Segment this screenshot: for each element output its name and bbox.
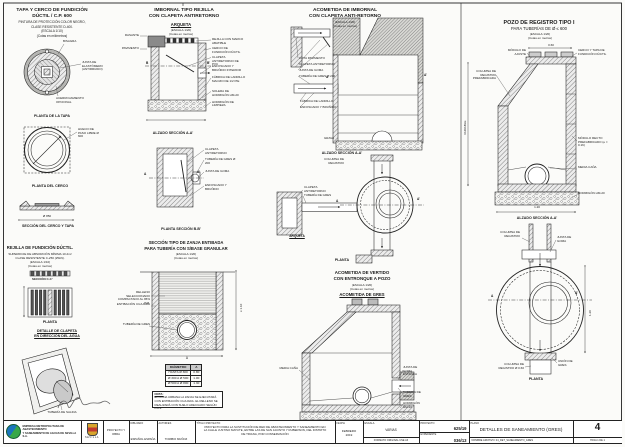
p3-plan-mark-a: A bbox=[336, 200, 338, 204]
panel1-title-line2: DÚCTIL / C.P. 600 bbox=[32, 14, 72, 19]
caption-detalle-clapeta-1: DETALLE DE CLAPETA bbox=[37, 329, 77, 333]
panel1-title-line1: TAPA Y CERCO DE FUNDICIÓN bbox=[16, 8, 87, 13]
dim-pozo-planta: 1.20 bbox=[589, 310, 593, 316]
caption-planta-tapa: PLANTA DE LA TAPA bbox=[34, 114, 70, 118]
dim-pozo-060: 0.60 bbox=[548, 44, 554, 48]
label-modulo-recto: MÓDULO RECTO PREFABRICADO (e = 0.16) bbox=[578, 137, 614, 148]
caption-rejilla-planta: PLANTA bbox=[43, 320, 57, 324]
panel2-title-line1: IMBORNAL TIPO REJILLA bbox=[154, 8, 214, 13]
p4-mark-a2: A' bbox=[575, 292, 578, 296]
sheet-number: 4 bbox=[574, 422, 622, 433]
project-phase-cell: PROYECTO Y OBRA bbox=[104, 421, 130, 443]
label-union-gres: UNIÓN DE GRES bbox=[558, 360, 580, 367]
label-modulo-ajuste: MÓDULO DE AJUSTE bbox=[500, 49, 526, 56]
rejilla-units-note: (Cotas en metros) bbox=[28, 265, 52, 269]
label-rejilla-marco: REJILLA CON MARCO ABATIBLE bbox=[212, 38, 244, 45]
dim-pozo-variable: VARIABLE bbox=[464, 121, 468, 135]
caption-pozo-alzado: ALZADO SECCIÓN A-A' bbox=[517, 216, 557, 220]
label-hormigon-limpieza: HORMIGÓN DE LIMPIEZA bbox=[212, 101, 244, 108]
label-det-ladrillo: FÁBRICA DE LADRILLO bbox=[300, 100, 333, 104]
table-row: Ø 500 A Ø 8001.30 bbox=[166, 381, 202, 387]
drawing-rejilla-planta bbox=[24, 288, 72, 317]
sheet-number-cell: 4 HOJA 1 DE 1 bbox=[574, 421, 622, 443]
panel2-units-note: (Cotas en metros) bbox=[169, 33, 193, 37]
company-name-line2: Y SANEAMIENTO DE AGUAS DE SEVILLA S.A. bbox=[23, 432, 79, 439]
label-det-junta: JUNTA DE GOMA bbox=[299, 69, 323, 73]
label-cerco-tapa: CERCO Y TAPA DE FUNDICIÓN DÚCTIL bbox=[578, 49, 614, 56]
label-rasante: RASANTE bbox=[114, 34, 139, 38]
label-hueco-paso: HUECO DE PASO LIBRE Ø 600 bbox=[78, 128, 102, 139]
label-arq-tuberia: TUBERÍA DE GRES bbox=[304, 194, 334, 198]
caption-detalle-clapeta-2: EN DIRECCIÓN DEL AGUA bbox=[34, 334, 80, 338]
file-number: 036/13 bbox=[454, 438, 467, 443]
dim-cerco-seccion: Ø 850 bbox=[43, 215, 51, 219]
zanja-title-line2: PARA TUBERÍA CON S/BASE GRANULAR bbox=[144, 247, 227, 252]
drawing-rejilla-seccion bbox=[30, 271, 70, 276]
p3-mark-a2: A' bbox=[424, 74, 427, 78]
panel-rejilla-title: REJILLA DE FUNDICIÓN DÚCTIL. bbox=[7, 246, 73, 251]
project-phase: PROYECTO Y OBRA bbox=[104, 428, 129, 436]
label-pavimento: PAVIMENTO bbox=[114, 47, 139, 51]
label-hormigon-hm20: HORMIGÓN HM-20 bbox=[403, 402, 423, 409]
section-mark-b2: B' bbox=[207, 62, 210, 66]
label-hormigon-pozo: HORMIGÓN HM-20 bbox=[578, 192, 614, 196]
authors-label: AUTOR/ES bbox=[159, 422, 172, 425]
drafted-by-cell: DIBUJADO ESPAÑOL ESPAÑA bbox=[130, 421, 158, 443]
label-tuberia-gres: TUBERÍA DE GRES bbox=[112, 323, 150, 327]
caption-arqueta-planta: ARQUETA bbox=[289, 235, 305, 239]
caption-arqueta: ARQUETA bbox=[171, 23, 191, 28]
sheet-count: HOJA 1 DE 1 bbox=[574, 437, 622, 442]
plan-title-cell: PLANO DETALLES DE SANEAMIENTO (GRES) NOM… bbox=[470, 421, 574, 443]
p4-mark-a: A bbox=[491, 295, 493, 299]
caption-pozo-planta: PLANTA bbox=[529, 377, 543, 381]
drafted-by-label: DIBUJADO bbox=[131, 422, 144, 425]
file-number-label: EXPEDIENTE bbox=[421, 433, 437, 436]
p3-plan-mark-a2: A' bbox=[417, 198, 420, 202]
emasesa-logo bbox=[6, 424, 21, 439]
label-det-enfoscado: ENFOSCADO Y BRUÑIDO bbox=[300, 106, 336, 110]
label-junta-elastomero: JUNTA DE ELASTÓMERO (ANTIRRUIDO) bbox=[82, 61, 116, 72]
project-number: 625/19 bbox=[454, 426, 467, 431]
drawing-pozo1-tuberia bbox=[522, 224, 556, 262]
caption-seccion-cerco-tapa: SECCIÓN DEL CERCO Y TAPA bbox=[22, 224, 74, 228]
project-title-line3: DE TRIANA, POR CONSERVACIÓN bbox=[198, 433, 333, 437]
drawing-cerco-planta bbox=[24, 127, 77, 173]
authors-value: TORIBIO MUÑOZ bbox=[158, 437, 195, 441]
caption-imbornal-planta: PLANTA SECCIÓN B-B' bbox=[161, 227, 201, 231]
caption-planta-cerco: PLANTA DEL CERCO bbox=[32, 184, 68, 188]
drawing-vertido-seccion bbox=[299, 299, 416, 420]
drawing-imbornal-planta bbox=[149, 148, 204, 207]
label-junta-goma: JUNTA DE GOMA ESTANCA bbox=[403, 366, 423, 377]
heading-acometida-gres: ACOMETIDA DE GRES bbox=[339, 293, 384, 298]
plan-label: PLANO bbox=[471, 422, 479, 425]
project-title-cell: TÍTULO PROYECTO: PROYECTO PARA LA SUSTIT… bbox=[196, 421, 336, 443]
label-tuberia-salida: TUBERÍA DE SALIDA bbox=[47, 411, 76, 415]
label-fabrica-ladrillo: FÁBRICA DE LADRILLO MACIZO DE 1/2 PIE bbox=[212, 76, 246, 83]
zanja-units-note: (Cotas en metros) bbox=[174, 257, 198, 261]
panel2-title-line2: CON CLAPETA ANTIRETORNO bbox=[149, 14, 219, 19]
date-label: FECHA bbox=[337, 422, 345, 425]
drawing-acometida-imbornal bbox=[291, 18, 423, 150]
dim-zanja-ancho: A bbox=[186, 357, 188, 361]
label-media-cana-pozo: MEDIA CAÑA bbox=[578, 166, 614, 170]
sevilla-coat-of-arms bbox=[87, 423, 98, 436]
label-plan-enfoscado: ENFOSCADO Y BRUÑIDO bbox=[205, 184, 239, 191]
drawing-imbornal-alzado bbox=[140, 36, 211, 120]
city-name: SEVILLA bbox=[82, 436, 103, 439]
zanja-table: DIÁMETRO A HASTA Ø 3000.80 Ø 300 A Ø 500… bbox=[165, 364, 202, 387]
authors-cell: AUTOR/ES TORIBIO MUÑOZ bbox=[158, 421, 196, 443]
label-det-tuberia: TUBERÍA DE GRES Ø 200 bbox=[299, 75, 335, 79]
label-cerco-fundicion: CERCO DE FUNDICIÓN DÚCTIL bbox=[212, 47, 244, 54]
date-year: 2019 bbox=[336, 433, 363, 437]
panel3-title-line1: ACOMETIDA DE IMBORNAL bbox=[313, 8, 377, 13]
p3-mark-a: A bbox=[326, 76, 328, 80]
caption-acometida-alzado: ALZADO SECCIÓN A-A' bbox=[322, 151, 362, 155]
drawing-tapa-planta bbox=[24, 44, 81, 96]
plan-title: DETALLES DE SANEAMIENTO (GRES) bbox=[470, 427, 573, 432]
vertido-title-line2: CON ENTRONQUE A POZO bbox=[334, 277, 391, 282]
label-det-clapeta: CLAPETA ANTIRETORNO bbox=[299, 63, 335, 67]
section-mark-a2: A' bbox=[197, 171, 200, 175]
caption-seccion-cc: SECCIÓN C-C' bbox=[32, 278, 53, 282]
label-enfoscado: ENFOSCADO Y BRUÑIDO INTERIOR bbox=[212, 65, 244, 72]
scale-cell: ESCALA VARIAS FORMATO ORIGINAL UNE A3 bbox=[364, 421, 420, 443]
label-columna-registro: COLUMNA DE REGISTRO bbox=[316, 158, 344, 165]
label-columna-060: COLUMNA DE REGISTRO Ø 0.60 bbox=[494, 363, 524, 370]
scale-value: VARIAS bbox=[364, 428, 419, 432]
scale-label: ESCALA bbox=[365, 422, 375, 425]
label-media-cana: MEDIA CAÑA bbox=[272, 367, 298, 371]
drawing-zanja bbox=[140, 272, 236, 356]
project-number-label: PROYECTO bbox=[421, 422, 435, 425]
panel3-units-note: (Cotas en metros) bbox=[333, 25, 357, 29]
title-block: EMPRESA METROPOLITANA DE ABASTECIMIENTO … bbox=[4, 420, 622, 444]
city-seal-cell: SEVILLA bbox=[82, 421, 104, 443]
date-cell: FECHA FEBRERO 2019 bbox=[336, 421, 364, 443]
drawing-sheet: TAPA Y CERCO DE FUNDICIÓN DÚCTIL / C.P. … bbox=[0, 0, 625, 447]
company-name-line1: EMPRESA METROPOLITANA DE ABASTECIMIENTO bbox=[23, 425, 79, 432]
panel1-units-note: (Cotas en milímetros) bbox=[37, 35, 67, 39]
label-columna-registro-2: COLUMNA DE REGISTRO bbox=[490, 231, 520, 238]
label-solera: SOLERA DE HORMIGÓN HM-20 bbox=[212, 90, 244, 97]
label-acerrojamiento: ACERROJAMIENTO OPCIONAL bbox=[56, 97, 88, 104]
label-grava: GRAVA bbox=[316, 137, 334, 141]
panel4-units-note: (Cotas en metros) bbox=[528, 37, 552, 41]
label-junta-goma-2: JUNTA DE GOMA bbox=[557, 236, 579, 243]
label-entibacion: ENTIBACIÓN CUAJADA bbox=[112, 303, 150, 307]
panel4-title-line2: PARA TUBERÍAS DE Ø ≤ 600 bbox=[511, 27, 567, 32]
nota-box: NOTA: EN ZONA URBANA LA ZANJA SE EJECUTA… bbox=[152, 391, 223, 408]
label-tuberia-gres-2: TUBERÍA DE GRES bbox=[403, 391, 423, 398]
label-columna-prefabricada: COLUMNA DE REGISTRO PREFABRICADA bbox=[462, 70, 496, 81]
label-plan-clapeta: CLAPETA ANTIRETORNO bbox=[205, 148, 239, 155]
section-mark-a: A bbox=[144, 173, 146, 177]
label-plan-tuberia: TUBERÍA DE GRES Ø 200 bbox=[205, 158, 239, 165]
dim-zanja-altura: ≥ 1.10 bbox=[240, 304, 244, 312]
dim-pozo-120: 1.20 bbox=[534, 206, 540, 210]
company-cell: EMPRESA METROPOLITANA DE ABASTECIMIENTO … bbox=[4, 421, 82, 443]
section-mark-b: B bbox=[146, 62, 148, 66]
file-name: NOMBRE ARCHIVO: 04_DET_SANEAMIENTO_GRES bbox=[470, 437, 573, 442]
drawing-pozo1-planta bbox=[488, 253, 592, 374]
caption-acometida-planta: PLANTA bbox=[335, 258, 349, 262]
numbers-cell: PROYECTO 625/19 EXPEDIENTE 036/13 bbox=[420, 421, 470, 443]
paper-format: FORMATO ORIGINAL UNE A3 bbox=[364, 437, 419, 442]
drawing-clapeta-3d bbox=[22, 348, 80, 414]
label-bisagra: BISAGRA bbox=[63, 40, 76, 44]
label-plan-junta: JUNTA DE GOMA bbox=[205, 170, 239, 174]
label-det-pavimento: COTA PAVIMENTO bbox=[299, 57, 325, 61]
caption-imbornal-alzado: ALZADO SECCIÓN A-A' bbox=[153, 131, 193, 135]
drafted-by-value: ESPAÑOL ESPAÑA bbox=[130, 437, 157, 441]
